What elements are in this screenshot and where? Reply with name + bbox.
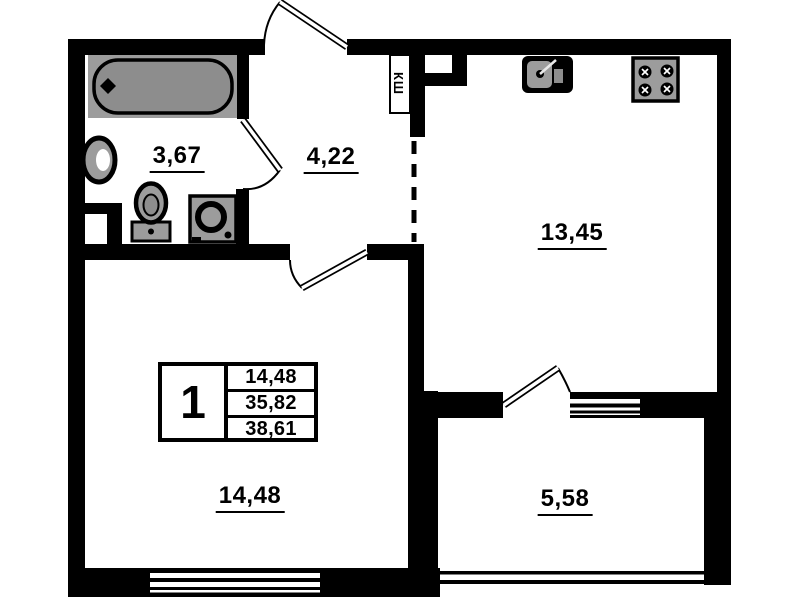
window-line <box>570 411 640 414</box>
wall-kitchen-bottom-right <box>640 392 717 418</box>
wall-left <box>68 39 85 597</box>
room-label-kitchen: 13,45 <box>538 219 607 250</box>
wall-bath-niche-top <box>85 203 122 214</box>
door-leaf-inner <box>302 252 367 288</box>
wall-kitchen-bottom-left <box>424 392 503 418</box>
toilet-bowl-inner <box>144 195 159 216</box>
wall-hall-kitchen-upper <box>410 55 425 137</box>
rooms-count: 1 <box>162 366 228 438</box>
balcony-door-icon <box>504 368 570 405</box>
door-leaf-inner <box>280 2 347 47</box>
window-line <box>570 415 640 418</box>
closet-label: КШ <box>391 72 406 95</box>
railing-line <box>438 580 704 584</box>
floor-plan: 3,67 4,22 13,45 14,48 5,58 КШ 1 14,48 35… <box>0 0 799 600</box>
kitchen-sink-icon <box>522 56 573 93</box>
balcony-railing <box>438 571 704 584</box>
apartment-area-value: 35,82 <box>228 389 314 418</box>
window-line <box>570 392 640 399</box>
door-leaf-inner <box>504 368 558 405</box>
stove-body <box>633 58 678 101</box>
wall-bathroom-right-lower <box>236 189 249 246</box>
entrance-door-icon <box>264 2 347 47</box>
wall-bathroom-bottom <box>68 244 290 260</box>
window-line <box>150 593 320 598</box>
window-line <box>150 568 320 573</box>
wall-bathroom-right-upper <box>237 55 249 119</box>
room-label-bathroom: 3,67 <box>150 142 205 173</box>
bathtub-icon <box>88 55 237 118</box>
bathroom-sink-icon <box>83 138 115 182</box>
wall-balcony-left <box>424 391 438 583</box>
toilet-button <box>148 229 154 235</box>
kitchen-balcony-window-icon <box>570 392 640 418</box>
washer-drum <box>198 204 224 230</box>
washer-detail <box>192 237 201 242</box>
walls-group <box>68 39 731 597</box>
wall-top-left <box>68 39 265 55</box>
door-swing-arc <box>243 170 280 189</box>
areas-column: 14,48 35,82 38,61 <box>228 366 314 438</box>
living-room-door-icon <box>290 252 367 288</box>
living-area-value: 14,48 <box>228 366 314 389</box>
stove-icon <box>633 58 678 101</box>
wall-top-right <box>347 39 731 55</box>
door-swing-arc <box>290 260 302 288</box>
wall-bottom-segment-right <box>320 568 440 597</box>
window-line <box>150 578 320 582</box>
wall-right-balcony <box>704 392 731 585</box>
toilet-icon <box>132 184 170 242</box>
sink-drainboard <box>554 69 563 83</box>
door-leaf-inner <box>243 120 280 170</box>
sink-basin <box>96 149 110 171</box>
window-line <box>570 404 640 408</box>
total-area-value: 38,61 <box>228 418 314 441</box>
wall-bottom-segment-left <box>68 568 150 597</box>
wall-bath-niche-side <box>107 214 122 246</box>
wall-right-kitchen <box>717 39 731 392</box>
wall-shaft-right <box>452 55 467 86</box>
room-label-living-room: 14,48 <box>216 482 285 513</box>
wall-living-kitchen <box>408 244 424 568</box>
washer-knob <box>225 232 232 239</box>
apartment-info-box: 1 14,48 35,82 38,61 <box>158 362 318 442</box>
railing-line <box>438 571 704 575</box>
door-swing-arc <box>264 2 280 45</box>
room-label-balcony: 5,58 <box>538 485 593 516</box>
door-swing-arc <box>558 368 570 392</box>
washing-machine-icon <box>190 196 236 242</box>
room-label-hallway: 4,22 <box>304 143 359 174</box>
window-line <box>150 587 320 590</box>
bathroom-door-icon <box>243 120 280 189</box>
living-room-window-icon <box>150 568 320 597</box>
